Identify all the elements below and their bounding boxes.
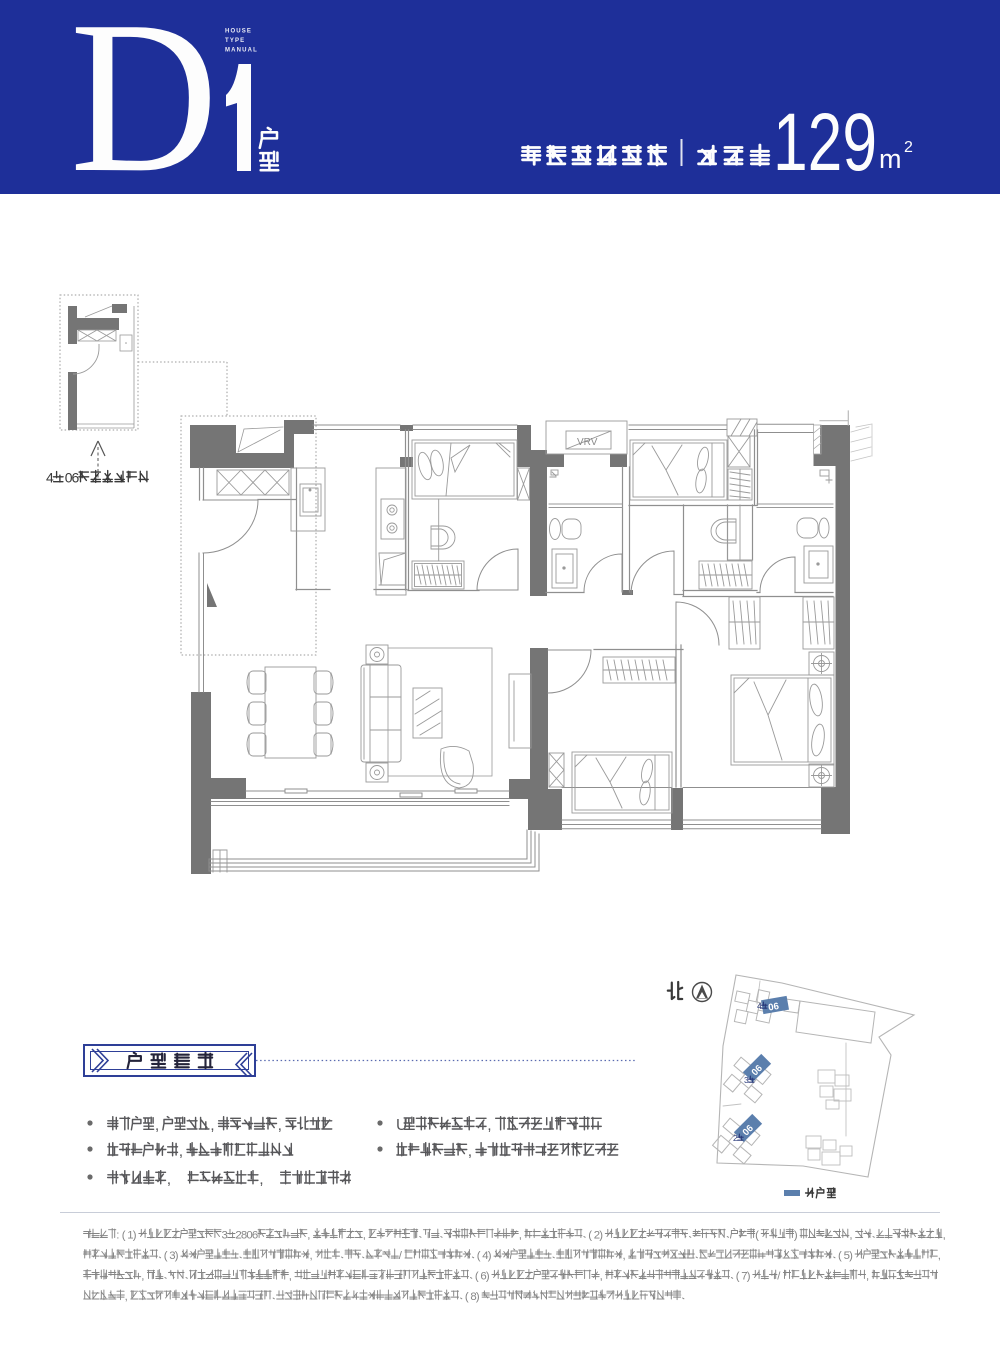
- svg-text:(: (: [122, 1229, 126, 1241]
- svg-text:(: (: [475, 1270, 479, 1282]
- svg-text:): ): [133, 1229, 137, 1241]
- svg-text:,: ,: [155, 1117, 159, 1134]
- svg-text:): ): [849, 1250, 853, 1262]
- svg-text:,: ,: [310, 1250, 313, 1262]
- svg-text:,: ,: [938, 1250, 941, 1262]
- svg-text:(: (: [164, 1250, 168, 1262]
- svg-text:): ): [486, 1270, 490, 1282]
- svg-text:,: ,: [278, 1117, 282, 1134]
- svg-text:): ): [476, 1291, 480, 1303]
- svg-text:U: U: [396, 1117, 407, 1134]
- svg-text:,: ,: [141, 1270, 144, 1282]
- svg-text:,: ,: [210, 1117, 214, 1134]
- svg-text:(: (: [465, 1291, 469, 1303]
- svg-text:,: ,: [487, 1117, 491, 1134]
- svg-text:,: ,: [849, 1229, 852, 1241]
- svg-text:): ): [599, 1229, 603, 1241]
- svg-text::: :: [116, 1229, 119, 1241]
- svg-text:,: ,: [259, 1171, 263, 1188]
- svg-text:(: (: [755, 1229, 759, 1241]
- svg-text:6: 6: [252, 1229, 258, 1241]
- svg-text:,: ,: [307, 1229, 310, 1241]
- svg-text:,: ,: [167, 1171, 171, 1188]
- svg-text:3: 3: [222, 1229, 228, 1241]
- svg-text:,: ,: [363, 1229, 366, 1241]
- svg-text:): ): [747, 1270, 751, 1282]
- svg-text:): ): [794, 1229, 798, 1241]
- svg-text:,: ,: [519, 1229, 522, 1241]
- svg-text:/: /: [777, 1270, 781, 1282]
- svg-text:): ): [175, 1250, 179, 1262]
- svg-text:(: (: [588, 1229, 592, 1241]
- svg-text:,: ,: [943, 1229, 946, 1241]
- svg-text:(: (: [838, 1250, 842, 1262]
- svg-text:/: /: [399, 1250, 403, 1262]
- svg-text:,: ,: [468, 1143, 472, 1160]
- svg-text:,: ,: [179, 1143, 183, 1160]
- svg-text:,: ,: [600, 1270, 603, 1282]
- svg-text:,: ,: [866, 1270, 869, 1282]
- svg-text:,: ,: [289, 1270, 292, 1282]
- svg-text:(: (: [736, 1270, 740, 1282]
- svg-text:,: ,: [623, 1250, 626, 1262]
- svg-text:): ): [488, 1250, 492, 1262]
- svg-text:,: ,: [125, 1291, 128, 1303]
- svg-text:(: (: [477, 1250, 481, 1262]
